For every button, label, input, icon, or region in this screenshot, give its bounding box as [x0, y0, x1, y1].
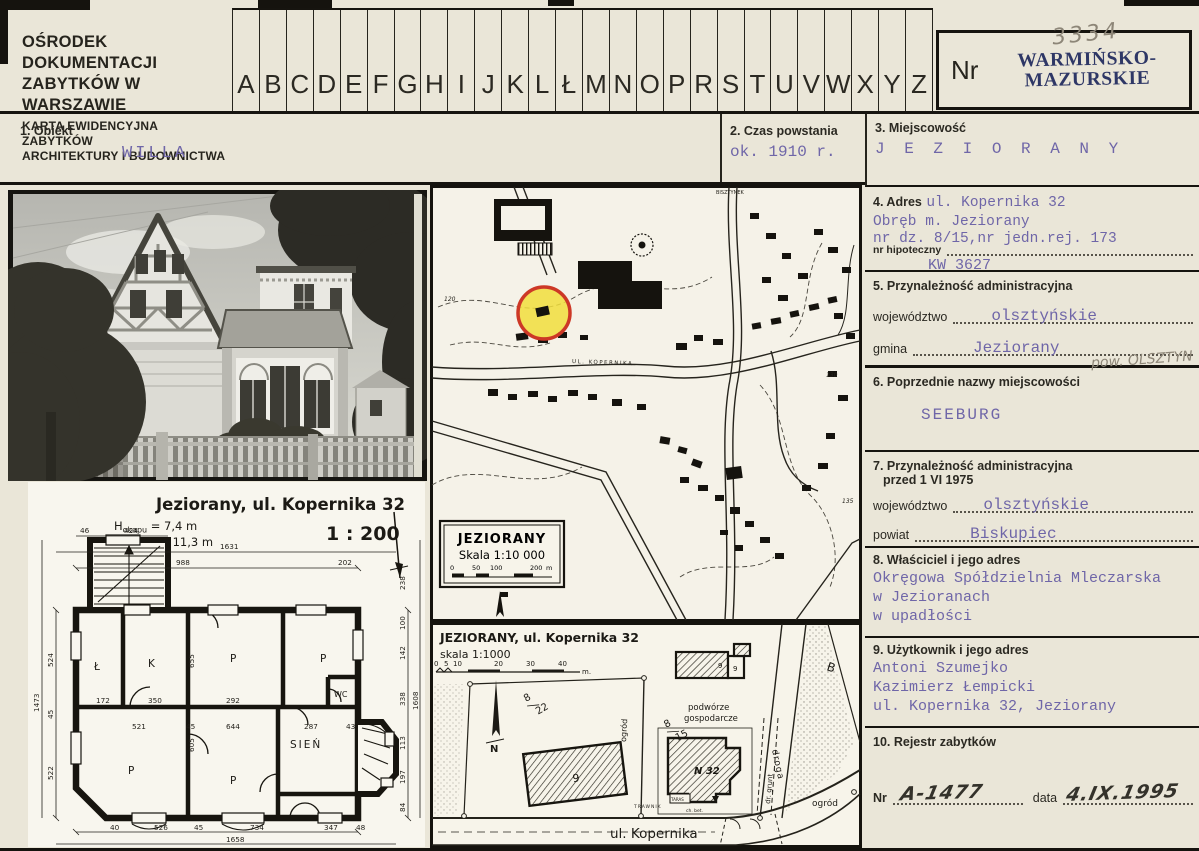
dim: 238 [398, 576, 407, 590]
map-scale-tick: 100 [490, 564, 502, 572]
terrace-label: TARAS [670, 797, 684, 802]
field-miejscowosc: 3. Miejscowość J E Z I O R A N Y [865, 114, 1199, 187]
field-obiekt-value: WILLA [122, 144, 720, 163]
dim: 287 [304, 722, 318, 731]
room-label: P [128, 765, 134, 777]
field-uzytkownik-label: 9. Użytkownik i jego adres [873, 643, 1193, 657]
rejestr-data-value: 4.IX.1995 [1064, 780, 1181, 806]
site-building-left: 9 [523, 742, 627, 806]
town-map: UL. KOPERNIKA BISZTYNEK 120 130 135 JEZI… [430, 185, 862, 622]
field-wlasciciel-label: 8. Właściciel i jego adres [873, 553, 1193, 567]
powiat-line: Biskupiec [915, 522, 1193, 542]
field-rejestr: 10. Rejestr zabytków Nr A-1477 data 4.IX… [865, 728, 1199, 851]
alphabet-cell: B [260, 10, 287, 113]
alphabet-cell: O [637, 10, 664, 113]
dim: 84 [398, 802, 407, 812]
fields-row: 1. Obiekt WILLA 2. Czas powstania ok. 19… [0, 114, 865, 185]
dim: 655 [187, 654, 196, 668]
floor-plan: Jeziorany, ul. Kopernika 32 Hokapu = 7,4… [28, 482, 425, 847]
nr-hipoteczny-label: nr hipoteczny [873, 244, 941, 256]
field-uzytkownik: 9. Użytkownik i jego adres Antoni Szumej… [865, 638, 1199, 728]
alphabet-cell: N [610, 10, 637, 113]
garden-label: ogród [812, 798, 838, 809]
field-obiekt: 1. Obiekt WILLA [0, 114, 720, 182]
floor-plan-title: Jeziorany, ul. Kopernika 32 [155, 495, 405, 514]
org-line1: OŚRODEK DOKUMENTACJI [22, 32, 232, 74]
alphabet-cell: L [529, 10, 556, 113]
alphabet-cell: W [825, 10, 852, 113]
room-label: WC [334, 690, 348, 699]
lawn-label: TRAWNIK [633, 804, 662, 810]
site-scale-tick: 30 [526, 660, 535, 668]
alphabet-cell: D [314, 10, 341, 113]
wojewodztwo-line: olsztyńskie [953, 304, 1193, 324]
wojewodztwo-1975-line: olsztyńskie [953, 493, 1193, 513]
dim: 521 [132, 722, 146, 731]
rejestr-data-line: 4.IX.1995 [1063, 781, 1193, 805]
pavement-label: ch. bet. [686, 808, 703, 814]
field-miejscowosc-label: 3. Miejscowość [875, 121, 1193, 135]
site-scale-tick: 40 [558, 660, 567, 668]
dim: 45 [194, 823, 203, 832]
dim: 522 [46, 766, 55, 780]
map-scale-unit: m [546, 564, 552, 572]
gmina-label: gmina [873, 342, 907, 356]
alphabet-cell: V [798, 10, 825, 113]
rejestr-nr-line: A-1477 [893, 781, 1023, 805]
field-poprzednie-nazwy: 6. Poprzednie nazwy miejscowości SEEBURG [865, 368, 1199, 452]
dim: 424 [124, 526, 138, 535]
dim: 644 [226, 722, 240, 731]
alphabet-cell: X [852, 10, 879, 113]
dim: 48 [356, 823, 366, 832]
dim: 100 [398, 616, 407, 630]
nr-hipoteczny-line [947, 254, 1193, 256]
alphabet-cell: Y [879, 10, 906, 113]
user-line2: Kazimierz Łempicki [873, 678, 1193, 697]
dim: 40 [110, 823, 120, 832]
field-adres-label: 4. Adres [873, 195, 922, 209]
gmina-value: Jeziorany [973, 339, 1059, 357]
alphabet-index-strip: A B C D E F G H I J K L Ł M N O P R S T … [232, 8, 933, 113]
alphabet-cell: Z [906, 10, 933, 113]
dim: 46 [80, 526, 90, 535]
former-name-value: SEEBURG [921, 406, 1193, 424]
alphabet-cell: K [502, 10, 529, 113]
owner-line2: w Jezioranach [873, 588, 1193, 607]
field-czas-powstania: 2. Czas powstania ok. 1910 r. [720, 114, 865, 182]
scan-artifact [548, 0, 574, 6]
user-line1: Antoni Szumejko [873, 659, 1193, 678]
alphabet-cell: T [745, 10, 772, 113]
map-legend-title: JEZIORANY [457, 532, 546, 547]
dim: 988 [176, 558, 190, 567]
field-wlasciciel: 8. Właściciel i jego adres Okręgowa Spół… [865, 548, 1199, 638]
field-przynaleznosc-1975-label2: przed 1 VI 1975 [883, 473, 1193, 487]
alphabet-cell: H [421, 10, 448, 113]
photo-paper-margin [414, 194, 422, 477]
site-plan-title: JEZIORANY, ul. Kopernika 32 [439, 630, 639, 645]
dim: 1608 [411, 691, 420, 710]
site-scale-tick: 5 [444, 660, 448, 668]
field-przynaleznosc-label: 5. Przynależność administracyjna [873, 279, 1193, 293]
dim: 605 [187, 738, 196, 752]
street-name-label: ul. Kopernika [610, 826, 698, 842]
dim: 197 [398, 770, 407, 784]
dim: 1473 [32, 693, 41, 712]
scan-artifact [0, 0, 90, 10]
alphabet-cell: E [341, 10, 368, 113]
garden-label: ogród [618, 719, 629, 743]
field-obiekt-label: 1. Obiekt [20, 124, 720, 138]
voivodeship-stamp: WARMIŃSKO- MAZURSKIE [986, 48, 1189, 92]
owner-line1: Okręgowa Spółdzielnia Mleczarska [873, 569, 1193, 588]
dim: 524 [46, 653, 55, 667]
alphabet-cell: F [368, 10, 395, 113]
dim: 1658 [226, 835, 245, 844]
dim: 45 [46, 710, 55, 719]
dim: 347 [324, 823, 338, 832]
site-plan: JEZIORANY, ul. Kopernika 32 skala 1:1000… [430, 622, 862, 848]
alphabet-cell: G [395, 10, 422, 113]
org-line2: ZABYTKÓW W WARSZAWIE [22, 74, 232, 116]
field-miejscowosc-value: J E Z I O R A N Y [875, 140, 1193, 158]
field-czas-label: 2. Czas powstania [730, 124, 865, 138]
map-scale-tick: 50 [472, 564, 480, 572]
dim: 338 [398, 692, 407, 706]
building-number: 9 [733, 665, 737, 673]
dim: 734 [250, 823, 264, 832]
site-north-label: N [490, 744, 498, 755]
wojewodztwo-value: olsztyńskie [991, 307, 1097, 325]
floor-plan-scale: 1 : 200 [326, 523, 400, 545]
map-scale-tick: 0 [450, 564, 454, 572]
scan-artifact [0, 8, 8, 64]
map-contour-label: 135 [842, 498, 854, 505]
map-location-marker [518, 287, 570, 339]
alphabet-cell: U [771, 10, 798, 113]
map-scale-tick: 200 [530, 564, 542, 572]
rejestr-nr-label: Nr [873, 791, 887, 805]
villa-photo [8, 190, 427, 481]
field-adres-value: ul. Kopernika 32 [926, 195, 1065, 211]
rejestr-data-label: data [1033, 791, 1057, 805]
dim: 45 [186, 722, 195, 731]
alphabet-cell: I [448, 10, 475, 113]
alphabet-cell: M [583, 10, 610, 113]
powiat-label: powiat [873, 528, 909, 542]
dim: 350 [148, 696, 162, 705]
field-przynaleznosc-1975: 7. Przynależność administracyjna przed 1… [865, 452, 1199, 548]
field-czas-value: ok. 1910 r. [730, 143, 865, 161]
alphabet-cell: P [664, 10, 691, 113]
dim: 113 [398, 736, 407, 750]
room-label: P [230, 775, 236, 787]
building-number: N 32 [694, 766, 720, 777]
map-contour-label: 130 [826, 372, 838, 379]
alphabet-cell: C [287, 10, 314, 113]
dim: 526 [154, 823, 168, 832]
dim: 292 [226, 696, 240, 705]
rejestr-nr-value: A-1477 [898, 781, 985, 806]
alphabet-cell: Ł [556, 10, 583, 113]
nr-label: Nr [951, 55, 978, 86]
alphabet-cell: J [475, 10, 502, 113]
field-poprzednie-label: 6. Poprzednie nazwy miejscowości [873, 375, 1193, 389]
site-scale-tick: 10 [453, 660, 462, 668]
field-przynaleznosc-1975-label: 7. Przynależność administracyjna [873, 459, 1193, 473]
map-contour-label: 120 [444, 296, 456, 303]
site-scale-unit: m. [582, 668, 591, 676]
yard-label: gospodarcze [684, 714, 738, 724]
stamp-line2: MAZURSKIE [986, 68, 1189, 92]
yard-label: podwórze [688, 702, 729, 713]
dim: 172 [96, 696, 110, 705]
user-line3: ul. Kopernika 32, Jeziorany [873, 697, 1193, 716]
map-legend-scale: Skala 1:10 000 [459, 548, 545, 562]
room-label: P [320, 653, 326, 665]
room-label: Ł [93, 661, 100, 673]
map-top-street-label: BISZTYNEK [716, 190, 745, 196]
site-scale-tick: 0 [434, 660, 438, 668]
owner-line3: w upadłości [873, 607, 1193, 626]
alphabet-cell: A [233, 10, 260, 113]
dim: 202 [338, 558, 352, 567]
room-label: P [230, 653, 236, 665]
right-column: 3. Miejscowość J E Z I O R A N Y 4. Adre… [865, 114, 1199, 851]
field-rejestr-label: 10. Rejestr zabytków [873, 735, 1193, 749]
powiat-value: Biskupiec [970, 525, 1056, 543]
dim: 1631 [220, 542, 239, 551]
alphabet-cell: R [691, 10, 718, 113]
wojewodztwo-1975-label: województwo [873, 499, 947, 513]
wojewodztwo-label: województwo [873, 310, 947, 324]
room-label: K [148, 658, 156, 670]
heritage-record-card: OŚRODEK DOKUMENTACJI ZABYTKÓW W WARSZAWI… [0, 0, 1199, 851]
wojewodztwo-1975-value: olsztyńskie [983, 496, 1089, 514]
scan-artifact [1124, 0, 1199, 6]
dim: 43 [346, 722, 356, 731]
scan-artifact [258, 0, 332, 8]
field-adres: 4. Adres ul. Kopernika 32 Obręb m. Jezio… [865, 187, 1199, 272]
field-przynaleznosc: 5. Przynależność administracyjna wojewód… [865, 272, 1199, 368]
room-label: SIEŃ [290, 738, 322, 751]
building-number: 9 [718, 662, 722, 670]
site-scale-tick: 20 [494, 660, 503, 668]
alphabet-cell: S [718, 10, 745, 113]
dim: 142 [398, 646, 407, 660]
field-adres-line2: Obręb m. Jeziorany [873, 213, 1193, 231]
